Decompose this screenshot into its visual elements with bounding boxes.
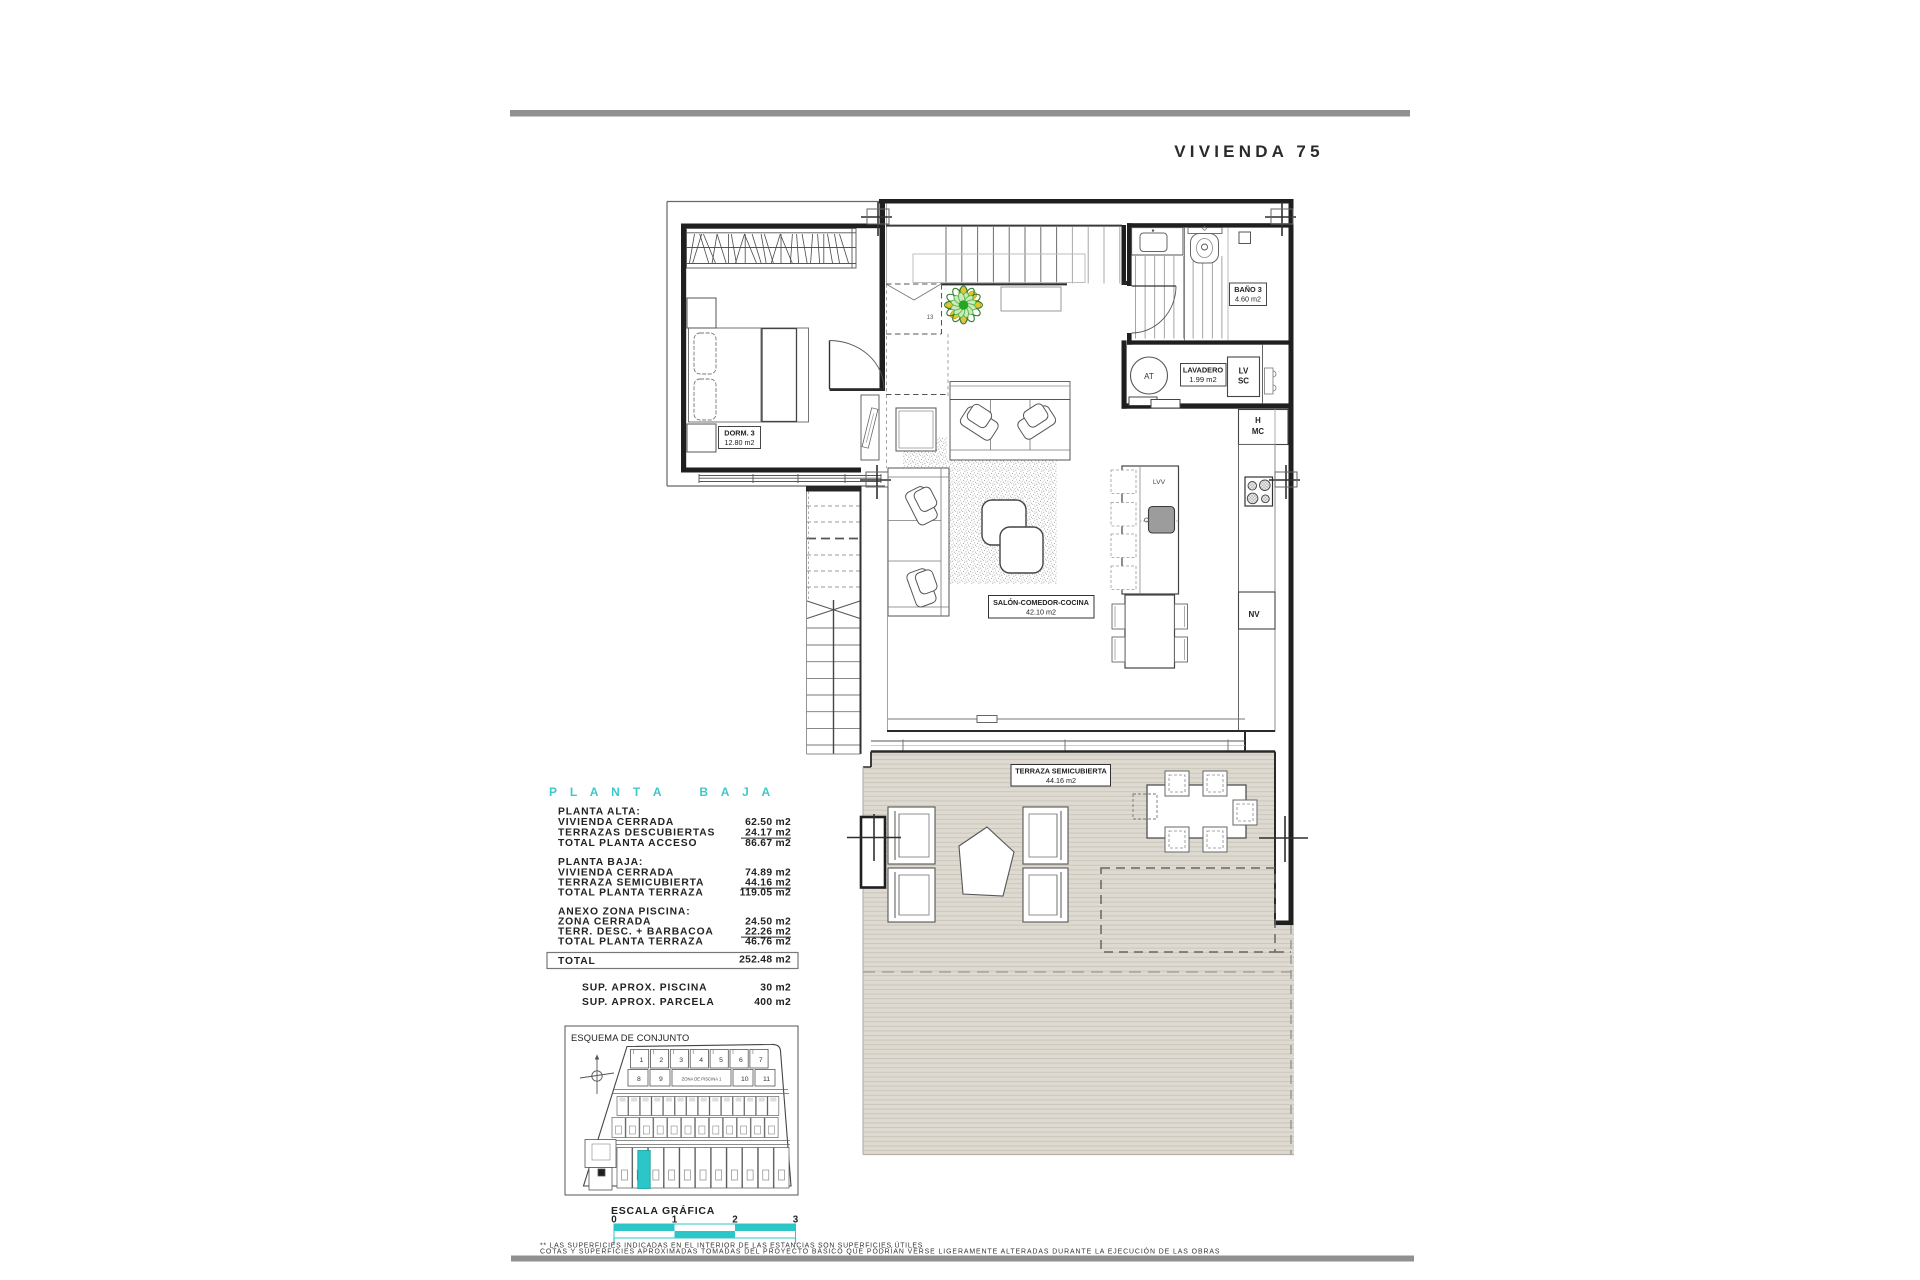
svg-text:12.80 m2: 12.80 m2: [725, 438, 755, 447]
svg-text:SUP. APROX. PARCELA: SUP. APROX. PARCELA: [582, 997, 715, 1008]
svg-text:VIVIENDA 75: VIVIENDA 75: [1174, 142, 1324, 161]
svg-text:PLANTA ALTA:: PLANTA ALTA:: [558, 807, 641, 818]
svg-text:13: 13: [927, 315, 934, 321]
svg-text:4: 4: [699, 1057, 703, 1064]
svg-text:1: 1: [640, 1057, 644, 1064]
svg-text:8: 8: [637, 1076, 641, 1083]
svg-text:TOTAL PLANTA ACCESO: TOTAL PLANTA ACCESO: [558, 838, 697, 849]
svg-text:252.48 m2: 252.48 m2: [739, 955, 791, 966]
svg-text:TERRAZA SEMICUBIERTA: TERRAZA SEMICUBIERTA: [1015, 767, 1107, 776]
svg-text:86.67 m2: 86.67 m2: [745, 838, 791, 849]
svg-text:NV: NV: [1248, 610, 1260, 619]
svg-text:24.17 m2: 24.17 m2: [745, 828, 791, 839]
svg-text:SALÓN-COMEDOR-COCINA: SALÓN-COMEDOR-COCINA: [993, 598, 1089, 607]
svg-text:7: 7: [759, 1057, 763, 1064]
svg-text:TOTAL PLANTA TERRAZA: TOTAL PLANTA TERRAZA: [558, 937, 704, 948]
svg-text:ZONA DE PISCINA 1: ZONA DE PISCINA 1: [682, 1077, 722, 1082]
svg-text:LAVADERO: LAVADERO: [1183, 366, 1224, 375]
svg-text:P L A N T A B A J A: P L A N T A B A J A: [549, 785, 775, 799]
svg-text:SC: SC: [1238, 377, 1249, 386]
svg-text:42.10 m2: 42.10 m2: [1026, 608, 1056, 617]
svg-text:3: 3: [679, 1057, 683, 1064]
svg-text:6: 6: [739, 1057, 743, 1064]
svg-text:119.05 m2: 119.05 m2: [740, 888, 791, 899]
svg-text:ESQUEMA DE CONJUNTO: ESQUEMA DE CONJUNTO: [571, 1033, 689, 1043]
svg-text:VIVIENDA CERRADA: VIVIENDA CERRADA: [558, 817, 674, 828]
svg-text:1.99 m2: 1.99 m2: [1189, 375, 1216, 384]
svg-text:TOTAL PLANTA TERRAZA: TOTAL PLANTA TERRAZA: [558, 888, 704, 899]
svg-text:TOTAL: TOTAL: [558, 956, 596, 967]
svg-text:2: 2: [659, 1057, 663, 1064]
svg-text:SUP. APROX. PISCINA: SUP. APROX. PISCINA: [582, 983, 707, 994]
svg-text:400 m2: 400 m2: [754, 997, 791, 1008]
svg-text:LV: LV: [1239, 367, 1249, 376]
svg-text:MC: MC: [1252, 427, 1264, 436]
svg-text:COTAS Y SUPERFICIES APROXIMADA: COTAS Y SUPERFICIES APROXIMADAS TOMADAS …: [540, 1247, 1220, 1256]
svg-text:5: 5: [719, 1057, 723, 1064]
svg-text:44.16 m2: 44.16 m2: [1046, 776, 1076, 785]
svg-text:DORM. 3: DORM. 3: [724, 429, 754, 438]
svg-text:BAÑO 3: BAÑO 3: [1234, 285, 1262, 294]
svg-text:TERRAZAS DESCUBIERTAS: TERRAZAS DESCUBIERTAS: [558, 828, 715, 839]
svg-text:AT: AT: [1144, 372, 1154, 381]
svg-text:LVV: LVV: [1153, 479, 1166, 486]
svg-text:62.50 m2: 62.50 m2: [745, 817, 791, 828]
svg-text:H: H: [1255, 416, 1261, 425]
svg-text:ESCALA GRÁFICA: ESCALA GRÁFICA: [611, 1204, 715, 1217]
svg-text:30 m2: 30 m2: [760, 983, 791, 994]
svg-text:10: 10: [741, 1076, 749, 1083]
svg-text:4.60 m2: 4.60 m2: [1235, 294, 1261, 303]
svg-text:9: 9: [659, 1076, 663, 1083]
svg-text:11: 11: [763, 1076, 770, 1083]
svg-text:PLANTA BAJA:: PLANTA BAJA:: [558, 857, 643, 868]
svg-text:46.76 m2: 46.76 m2: [745, 937, 791, 948]
